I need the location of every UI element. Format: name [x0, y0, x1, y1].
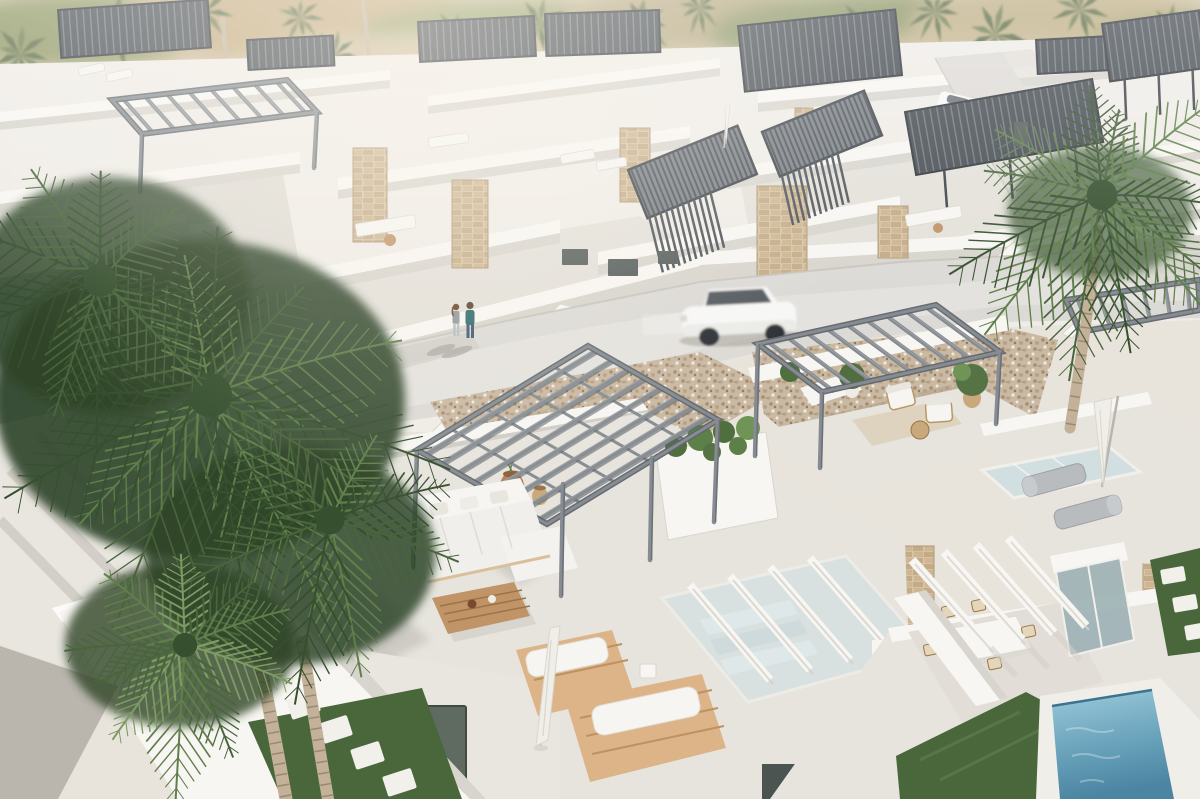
side-table [911, 421, 929, 439]
side-cube-table [640, 664, 656, 678]
armchair [925, 397, 953, 423]
aerial-villa-render [0, 0, 1200, 799]
plunge-pool [1036, 678, 1200, 799]
bowl [468, 600, 477, 609]
scene-canvas [0, 0, 1200, 799]
